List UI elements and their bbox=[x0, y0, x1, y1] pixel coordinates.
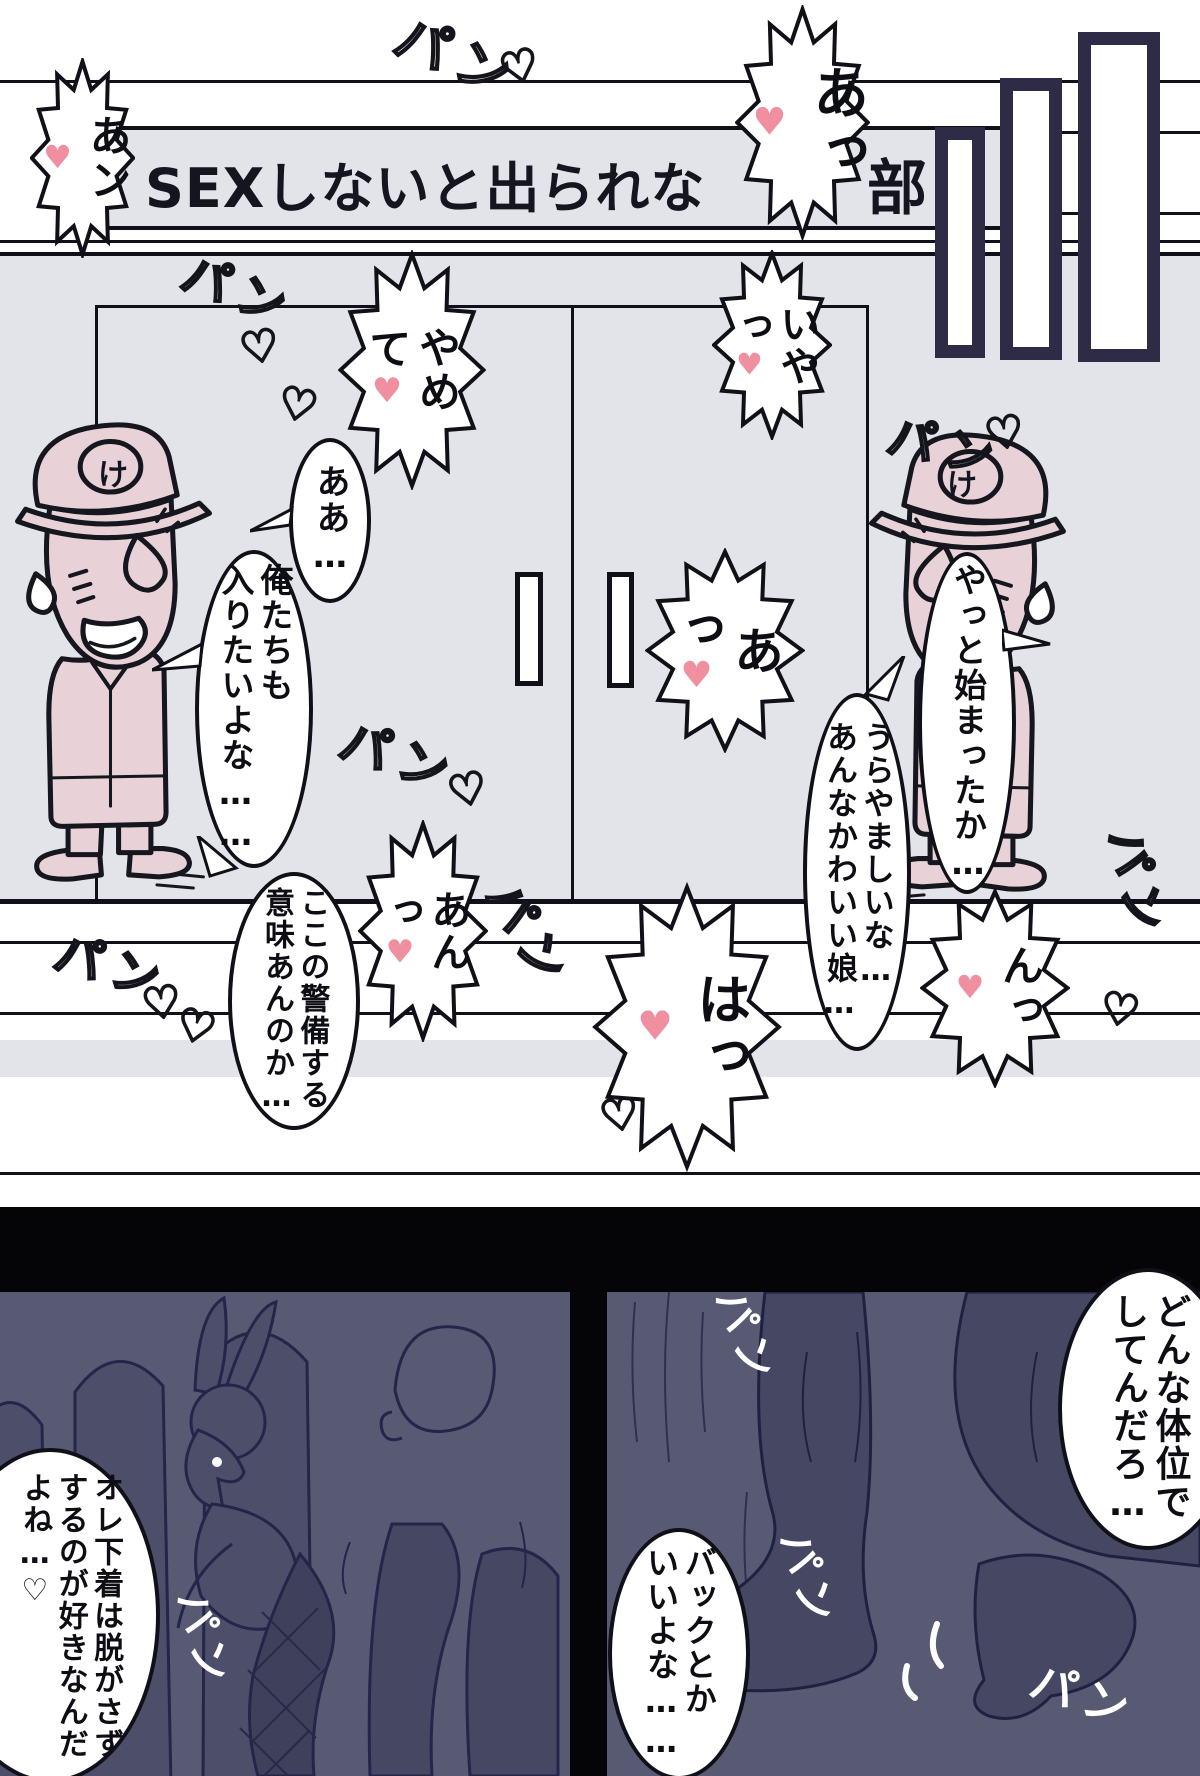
pink-heart: ♥ bbox=[39, 138, 77, 178]
bubble-back-text: バックとか いいよな…… bbox=[641, 1546, 717, 1762]
exclaim-n-text: んっ bbox=[996, 944, 1045, 1032]
bubble-oretachi-text: 俺たちも 入りたいよな…… bbox=[215, 563, 293, 855]
exclaim-an-top-left: あン♥ bbox=[30, 58, 135, 258]
exclaim-an-top-left-text: あン bbox=[83, 114, 132, 202]
pillar-bar-2 bbox=[1000, 78, 1062, 360]
bubble-urayamashii-text: うらやましいな… あんなかわいい娘… bbox=[820, 721, 893, 1023]
sfx-heart-bottom-right: ♡ bbox=[1096, 982, 1144, 1039]
door-center-line bbox=[571, 305, 574, 902]
exclaim-yamete: やめて♥ bbox=[338, 250, 486, 490]
panel1-bottom-line bbox=[0, 1172, 1200, 1175]
bubble-urayamashii: うらやましいな… あんなかわいい娘… bbox=[803, 693, 911, 1051]
exclaim-ha: はっ♥ bbox=[592, 882, 782, 1172]
bubble-urayamashii-tail bbox=[862, 656, 906, 702]
exclaim-n: んっ♥ bbox=[920, 888, 1070, 1088]
sign-text-left: SEXしないと出られな bbox=[145, 144, 705, 223]
pink-heart: ♥ bbox=[951, 968, 989, 1008]
pink-heart: ♥ bbox=[676, 655, 717, 698]
bubble-aa-tail bbox=[250, 505, 294, 537]
exclaim-a-top-text: あっ bbox=[804, 65, 869, 181]
pink-heart: ♥ bbox=[748, 100, 792, 146]
bubble-keibi-text: ここの警備する 意味あんのか… bbox=[259, 887, 330, 1116]
exclaim-a-mid: あっ♥ bbox=[645, 548, 805, 753]
sign-text-right: 部 bbox=[867, 140, 927, 227]
bubble-yatto-tail bbox=[1002, 622, 1052, 658]
bubble-yatto-text: やっと始まったか… bbox=[948, 563, 987, 884]
bubble-oretachi: 俺たちも 入りたいよな…… bbox=[195, 550, 313, 868]
pink-heart: ♥ bbox=[732, 348, 767, 385]
bubble-back: バックとか いいよな…… bbox=[608, 1528, 750, 1776]
bubble-oretachi-tail bbox=[152, 638, 204, 678]
bubble-shitagi-text: オレ下着は脱がさず するのが好きなんだ よね…♡ bbox=[17, 1472, 123, 1760]
exclaim-ha-text: はっ bbox=[688, 971, 751, 1083]
guard-right-cap-badge: け bbox=[947, 460, 977, 504]
door-handle-left bbox=[515, 572, 543, 686]
bubble-keibi-tail bbox=[196, 836, 240, 880]
pillar-bar-3 bbox=[1078, 32, 1160, 362]
exclaim-a-top: あっ♥ bbox=[735, 5, 870, 240]
pink-heart: ♥ bbox=[367, 371, 407, 413]
pink-heart: ♥ bbox=[381, 932, 419, 972]
bubble-keibi: ここの警備する 意味あんのか… bbox=[228, 872, 360, 1130]
pink-heart: ♥ bbox=[632, 1003, 678, 1051]
room-sign: SEXしないと出られな 部 bbox=[95, 126, 1008, 230]
pillar-bar-1 bbox=[935, 127, 985, 358]
exclaim-ann: あんっ♥ bbox=[358, 820, 488, 1042]
guard-left-cap-badge: け bbox=[98, 450, 128, 494]
door-handle-right bbox=[607, 572, 634, 688]
comic-page: SEXしないと出られな 部 け け パン ♡ パン ♡ ♡ パン ♡ パン ♡ … bbox=[0, 0, 1200, 1776]
bubble-donna-text: どんな体位で してんだろ… bbox=[1106, 1293, 1191, 1526]
bubble-yatto: やっと始まったか… bbox=[918, 552, 1016, 894]
exclaim-iya: いやっ♥ bbox=[712, 250, 832, 440]
